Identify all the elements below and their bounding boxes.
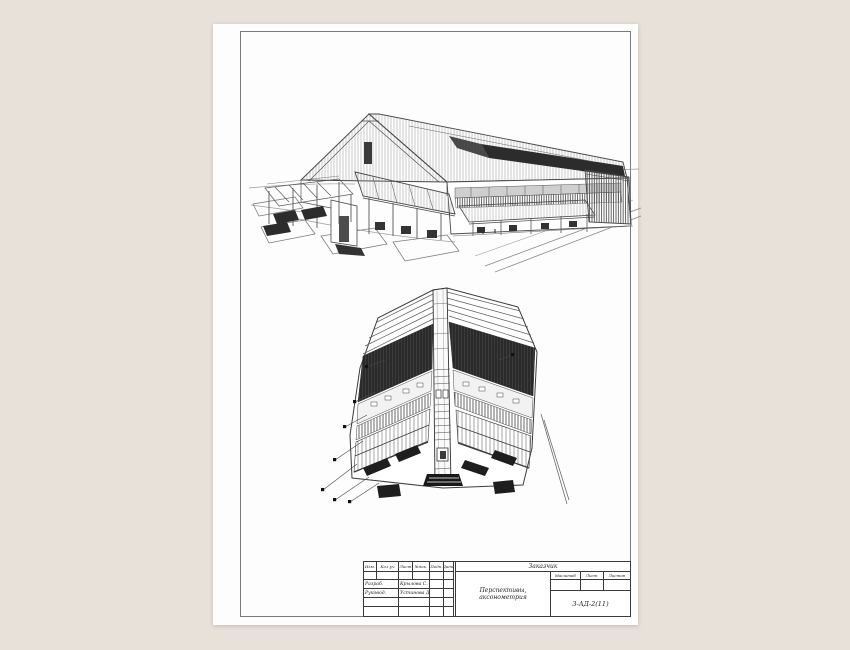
rev-col-koluch: Кол.уч bbox=[377, 562, 399, 572]
perspective-sketch-drawing bbox=[243, 84, 643, 274]
sheet-title: Перспективы, аксонометрия bbox=[456, 572, 551, 616]
rev-col-data: Дата bbox=[444, 562, 454, 572]
meta-scale-value bbox=[551, 580, 581, 591]
date-developer bbox=[444, 580, 454, 589]
right-annex bbox=[585, 170, 631, 224]
name-supervisor: Устинова Д. bbox=[399, 589, 430, 598]
entrance-block bbox=[331, 200, 365, 256]
name-developer: Крылова С. bbox=[399, 580, 430, 589]
rev-col-list: Лист bbox=[399, 562, 413, 572]
date-supervisor bbox=[444, 589, 454, 598]
meta-sheets-header: Листов bbox=[604, 572, 630, 580]
customer-cell: Заказчик bbox=[456, 562, 630, 572]
rev-col-ndok: №док. bbox=[413, 562, 430, 572]
paper-sheet: Изм. Кол.уч Лист №док. Подп. Дата Разраб… bbox=[213, 24, 638, 625]
sign-developer bbox=[430, 580, 444, 589]
meta-sheet-value bbox=[581, 580, 604, 591]
role-developer: Разраб. bbox=[364, 580, 399, 589]
scanned-drawing-sheet: { "colors": { "background": "#e8e1da", "… bbox=[0, 0, 850, 650]
sign-supervisor bbox=[430, 589, 444, 598]
axonometric-drawing bbox=[313, 274, 613, 534]
rev-col-izm: Изм. bbox=[364, 562, 377, 572]
meta-sheet-header: Лист bbox=[581, 572, 604, 580]
title-block: Изм. Кол.уч Лист №док. Подп. Дата Разраб… bbox=[363, 561, 631, 617]
group-code: 3-АД-2(11) bbox=[551, 591, 630, 616]
meta-scale-header: Масштаб bbox=[551, 572, 581, 580]
revision-table: Изм. Кол.уч Лист №док. Подп. Дата Разраб… bbox=[364, 562, 456, 616]
meta-sheets-value bbox=[604, 580, 630, 591]
rev-col-podp: Подп. bbox=[430, 562, 444, 572]
role-supervisor: Руковод. bbox=[364, 589, 399, 598]
stamp-right-block: Заказчик Перспективы, аксонометрия Масшт… bbox=[456, 562, 630, 616]
